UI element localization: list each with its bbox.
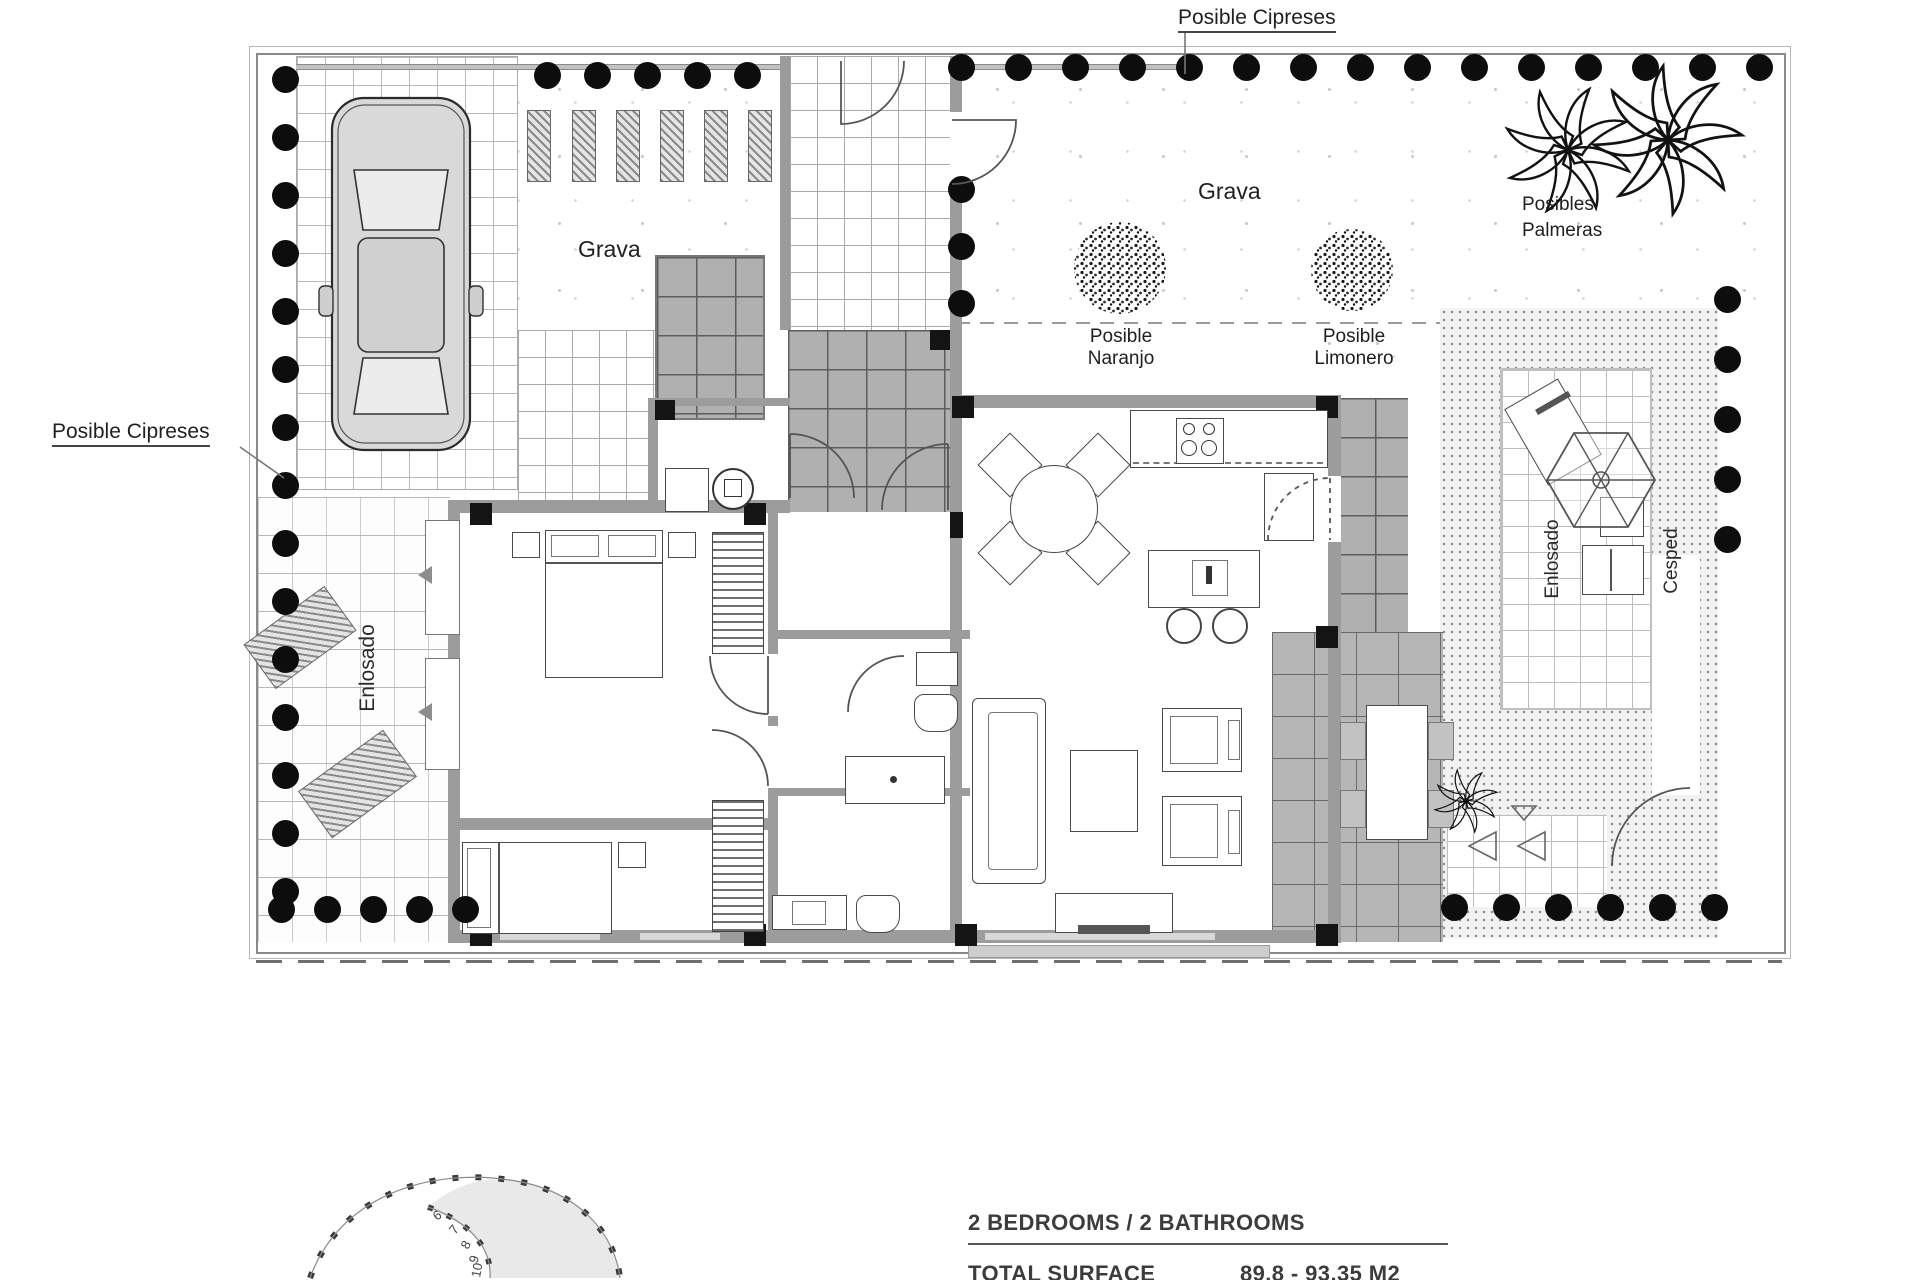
cypress-tree-dot [1119, 54, 1146, 81]
cypress-tree-dot [272, 240, 299, 267]
cypress-tree-dot [1714, 406, 1741, 433]
cypress-tree-dot [272, 762, 299, 789]
summary-total-surface-value: 89.8 - 93.35 M2 [1240, 1261, 1400, 1280]
cypress-tree-dot [1493, 894, 1520, 921]
cypress-tree-dot [1441, 894, 1468, 921]
cypress-tree-dot [1062, 54, 1089, 81]
cypress-tree-dot [268, 896, 295, 923]
cypress-tree-dot [272, 182, 299, 209]
label-naranjo-line2: Naranjo [1062, 348, 1180, 370]
cypress-tree-dot [272, 820, 299, 847]
summary-total-surface-label: TOTAL SURFACE [968, 1261, 1155, 1280]
cypress-tree-dot [406, 896, 433, 923]
label-palmeras-line2: Palmeras [1522, 218, 1652, 244]
label-cipreses-top-text: Posible Cipreses [1178, 6, 1336, 33]
cypress-tree-dot [1290, 54, 1317, 81]
label-cipreses-left-text: Posible Cipreses [52, 420, 210, 447]
cypress-tree-dot [948, 176, 975, 203]
label-cipreses-top: Posible Cipreses [1178, 6, 1336, 30]
cypress-tree-dot [272, 588, 299, 615]
cypress-tree-dot [1404, 54, 1431, 81]
cypress-tree-dot [1233, 54, 1260, 81]
cypress-tree-dot [272, 472, 299, 499]
cypress-tree-dot [1714, 286, 1741, 313]
cypress-tree-dot [1176, 54, 1203, 81]
cypress-tree-dot [1746, 54, 1773, 81]
cypress-tree-dot [1714, 526, 1741, 553]
label-naranjo: Posible Naranjo [1062, 326, 1180, 370]
cypress-tree-dot [1714, 466, 1741, 493]
label-cipreses-left: Posible Cipreses [52, 420, 210, 444]
cypress-tree-dot [948, 233, 975, 260]
label-limonero: Posible Limonero [1295, 326, 1413, 370]
summary-divider [968, 1243, 1448, 1245]
label-limonero-line1: Posible [1295, 326, 1413, 348]
cypress-tree-dot [634, 62, 661, 89]
label-limonero-line2: Limonero [1295, 348, 1413, 370]
cypress-tree-dot [1632, 54, 1659, 81]
cypress-tree-dot [534, 62, 561, 89]
cypress-tree-dot [1701, 894, 1728, 921]
label-enlosado-left: Enlosado [356, 568, 380, 768]
label-grava-left: Grava [578, 236, 641, 263]
label-enlosado-patio: Enlosado [1542, 459, 1564, 659]
cypress-tree-dot [452, 896, 479, 923]
cypress-tree-dot [1714, 346, 1741, 373]
cypress-tree-dot [272, 298, 299, 325]
cypress-tree-dot [1597, 894, 1624, 921]
cypress-tree-dot [272, 646, 299, 673]
cypress-tree-dot [272, 704, 299, 731]
cypress-tree-dot [314, 896, 341, 923]
cypress-tree-dot [1461, 54, 1488, 81]
cypress-tree-dot [1545, 894, 1572, 921]
label-palmeras-line1: Posibles [1522, 192, 1652, 218]
cypress-tree-dot [272, 124, 299, 151]
cypress-tree-dot [1347, 54, 1374, 81]
summary-rooms: 2 BEDROOMS / 2 BATHROOMS [968, 1210, 1305, 1236]
cypress-tree-dot [1575, 54, 1602, 81]
cypress-tree-dot [272, 66, 299, 93]
cypress-tree-dot [272, 530, 299, 557]
label-grava-right: Grava [1198, 178, 1261, 205]
cypress-tree-dot [584, 62, 611, 89]
label-cesped: Cesped [1661, 461, 1683, 661]
label-palmeras: Posibles Palmeras [1522, 192, 1652, 244]
cypress-tree-dot [1649, 894, 1676, 921]
cypress-tree-dot [948, 290, 975, 317]
cypress-tree-dot [272, 356, 299, 383]
cypress-tree-dot [1689, 54, 1716, 81]
floor-plan-page: 6 7 8 9 10 Posible Cipreses Posible Cipr… [0, 0, 1920, 1280]
label-naranjo-line1: Posible [1062, 326, 1180, 348]
cypress-tree-dot [734, 62, 761, 89]
cypress-tree-dot [272, 414, 299, 441]
cypress-tree-dot [1518, 54, 1545, 81]
cypress-tree-dot [948, 54, 975, 81]
cypress-tree-dot [684, 62, 711, 89]
cypress-tree-dot [360, 896, 387, 923]
cypress-tree-dot [1005, 54, 1032, 81]
